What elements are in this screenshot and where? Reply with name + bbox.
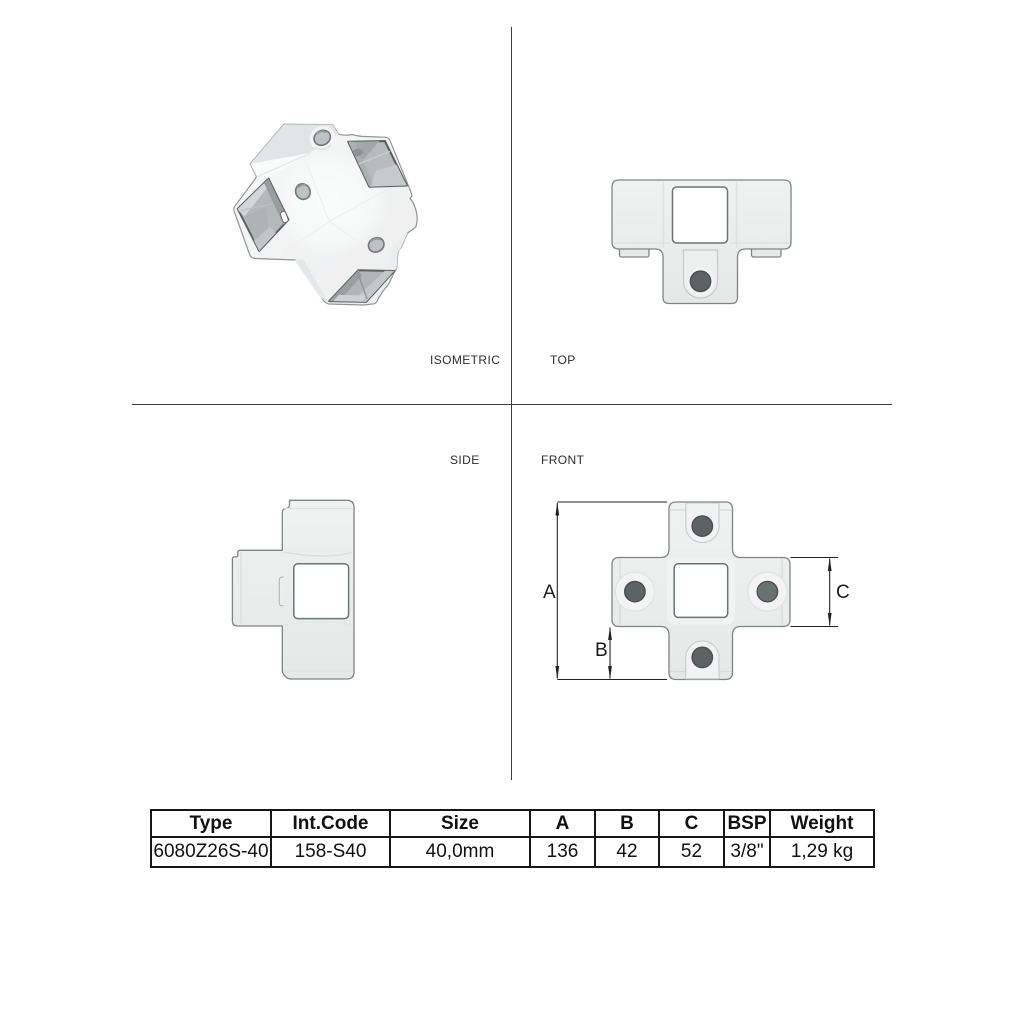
svg-text:C: C xyxy=(836,582,850,603)
svg-text:A: A xyxy=(543,582,556,603)
svg-text:B: B xyxy=(595,640,608,661)
